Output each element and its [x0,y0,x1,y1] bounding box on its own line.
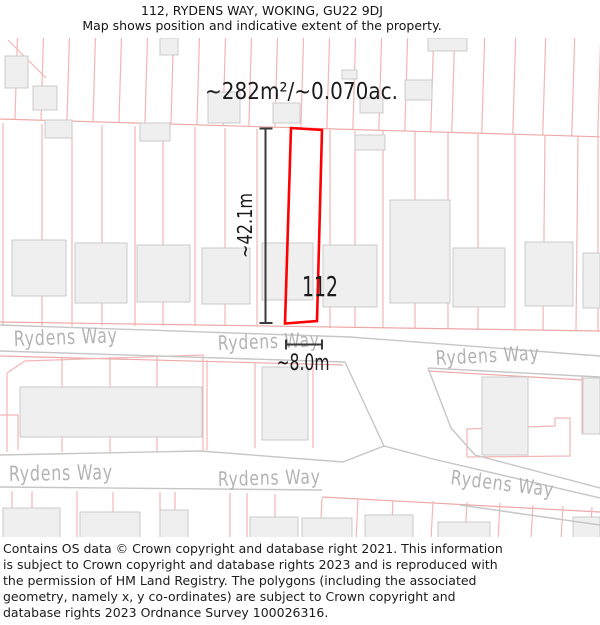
street-label: Rydens Way [13,323,118,351]
page-subtitle: Map shows position and indicative extent… [0,18,524,33]
property-map: Rydens Way Rydens Way Rydens Way Rydens … [0,38,600,537]
width-label: ~8.0m [277,351,330,376]
area-label: ~282m²/~0.070ac. [205,79,398,105]
connector-road-west-edge [345,362,384,446]
street-label: Rydens Way [449,465,555,501]
plot-number-label: 112 [302,270,338,303]
map-title-block: 112, RYDENS WAY, WOKING, GU22 9DJ Map sh… [0,0,524,38]
street-label: Rydens Way [218,464,322,491]
street-label: Rydens Way [435,341,540,370]
copyright-notice: Contains OS data © Crown copyright and d… [0,537,505,625]
street-label: Rydens Way [9,460,113,486]
length-label: ~42.1m [233,193,257,258]
page-title: 112, RYDENS WAY, WOKING, GU22 9DJ [0,3,524,18]
property-map-page: 112, RYDENS WAY, WOKING, GU22 9DJ Map sh… [0,0,600,625]
